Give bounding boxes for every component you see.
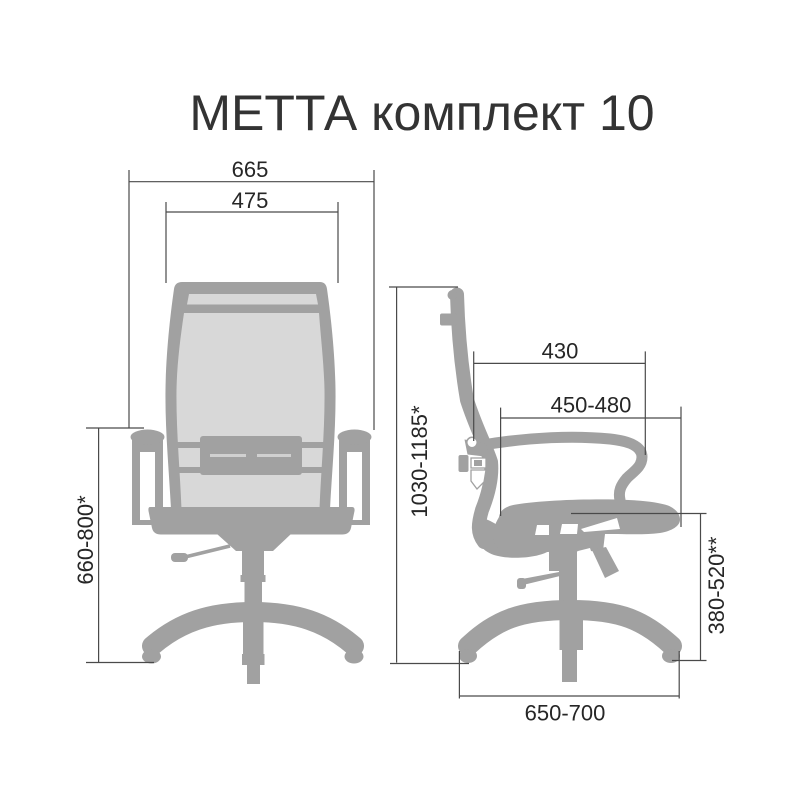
svg-text:450-480: 450-480: [551, 393, 632, 418]
svg-text:МЕТТА комплект 10: МЕТТА комплект 10: [189, 85, 654, 141]
svg-text:665: 665: [232, 157, 269, 182]
svg-text:430: 430: [542, 339, 579, 364]
svg-text:660-800*: 660-800*: [73, 495, 98, 585]
svg-text:650-700: 650-700: [525, 701, 606, 726]
svg-text:1030-1185*: 1030-1185*: [407, 405, 432, 518]
svg-text:475: 475: [232, 188, 269, 213]
svg-text:380-520**: 380-520**: [704, 536, 729, 634]
